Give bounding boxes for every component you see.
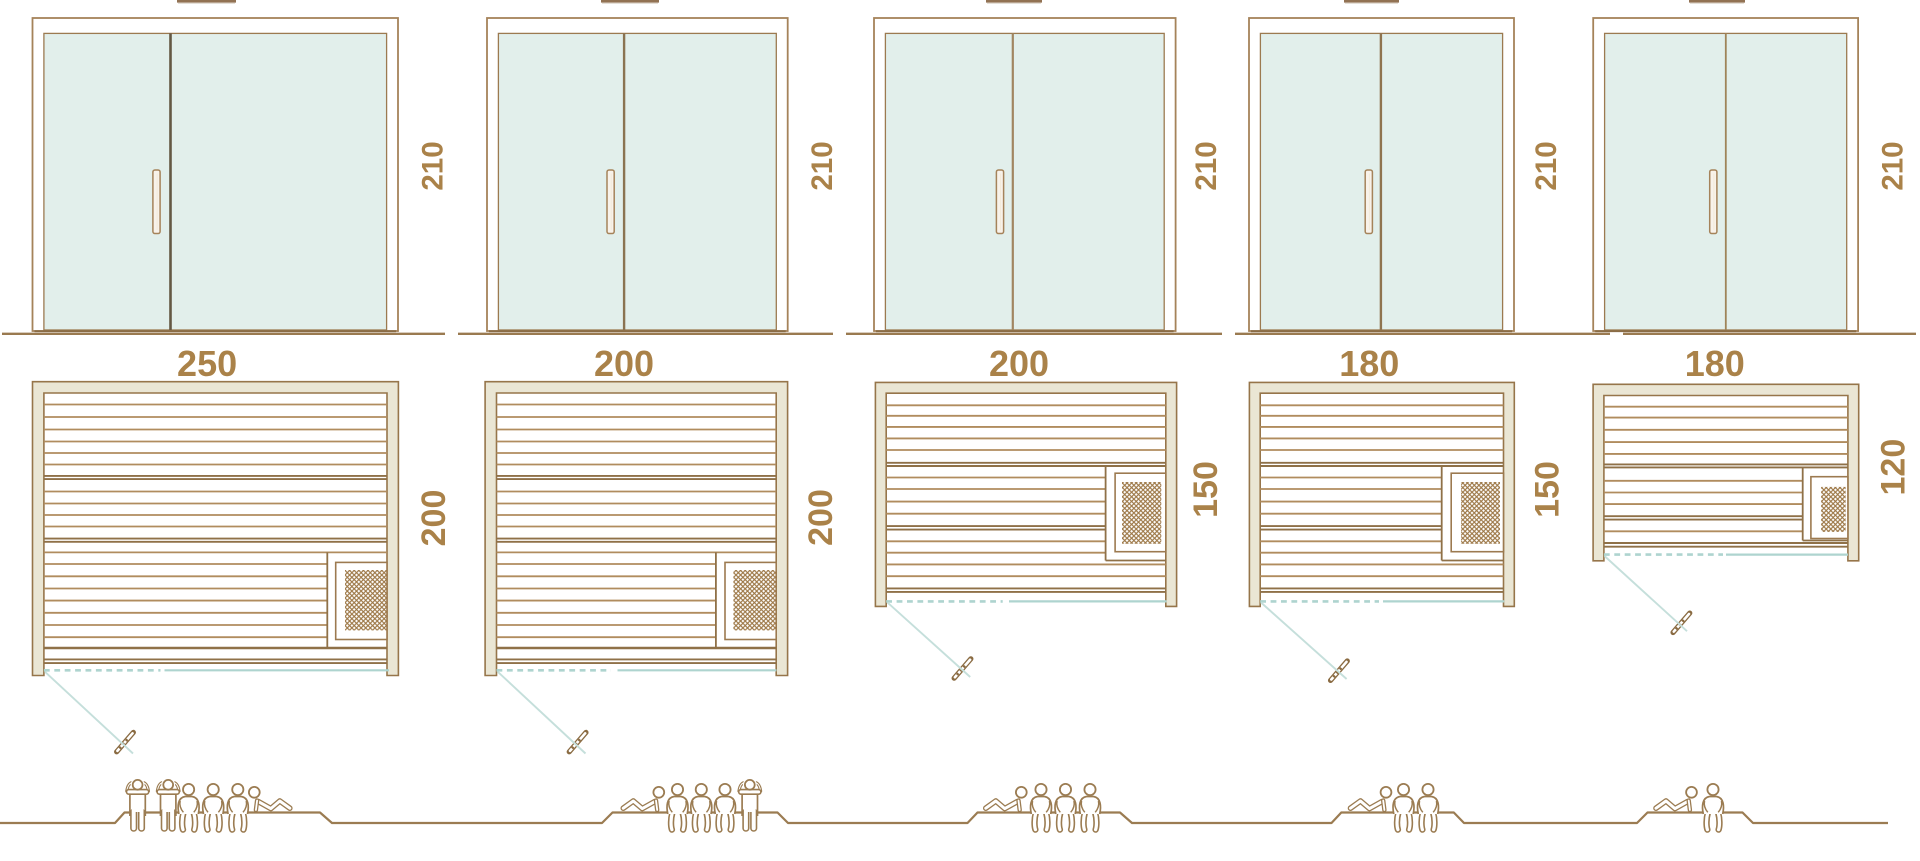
svg-text:250: 250 (177, 343, 237, 384)
svg-text:150: 150 (1187, 461, 1225, 518)
svg-text:200: 200 (594, 343, 654, 384)
svg-text:150: 150 (1529, 461, 1567, 518)
svg-text:200: 200 (802, 489, 840, 546)
svg-text:210: 210 (417, 141, 450, 190)
svg-text:200: 200 (989, 343, 1049, 384)
svg-text:200: 200 (415, 490, 453, 547)
svg-text:120: 120 (1875, 439, 1913, 496)
svg-text:180: 180 (1685, 343, 1745, 384)
svg-text:210: 210 (1876, 141, 1909, 190)
svg-text:210: 210 (1530, 141, 1563, 190)
svg-text:210: 210 (1190, 141, 1223, 190)
svg-text:210: 210 (806, 141, 839, 190)
svg-text:180: 180 (1339, 343, 1399, 384)
